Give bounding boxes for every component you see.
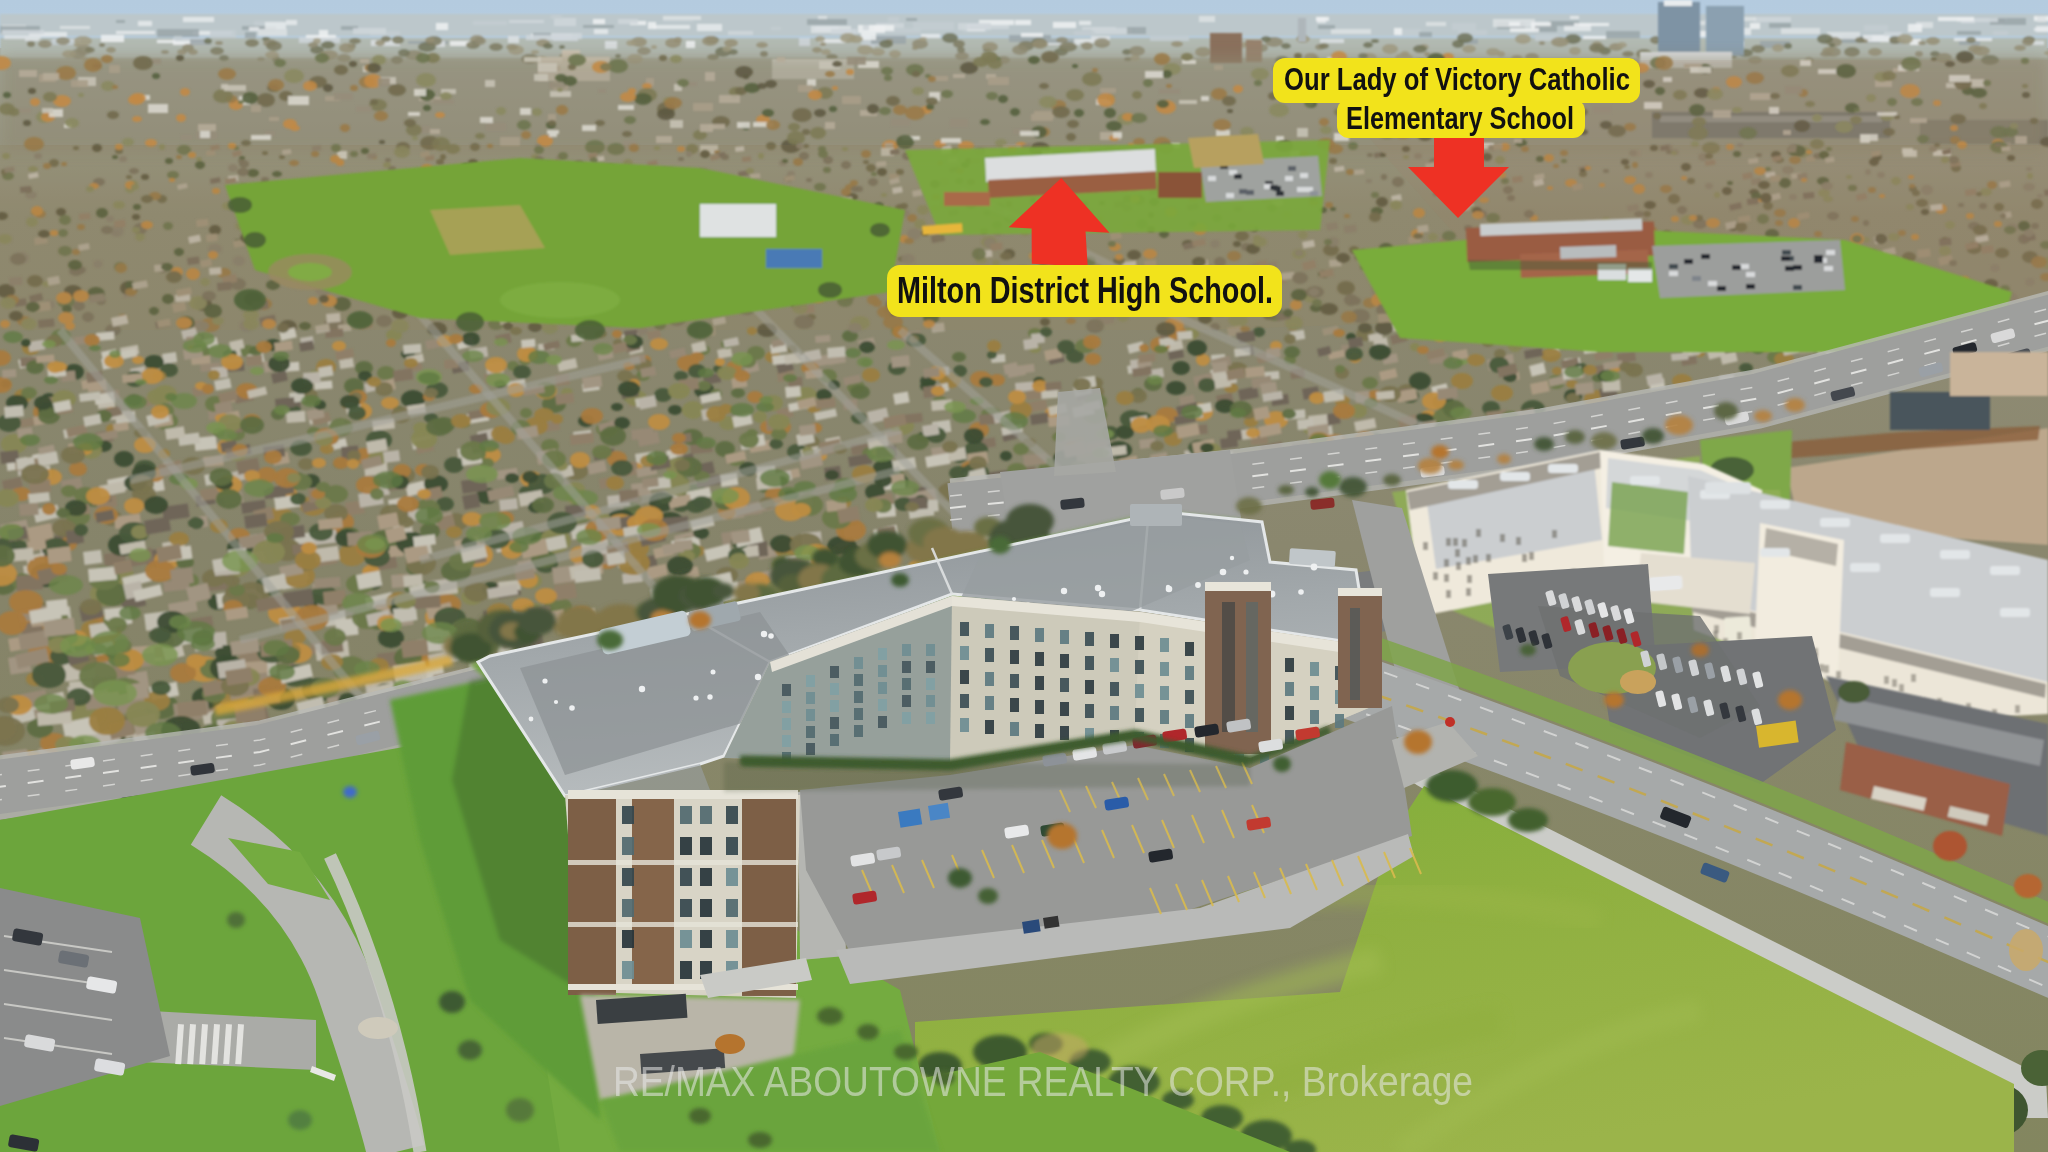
svg-text:RE/MAX ABOUTOWNE REALTY CORP.,: RE/MAX ABOUTOWNE REALTY CORP., Brokerage — [613, 1058, 1473, 1105]
svg-text:Elementary School: Elementary School — [1346, 101, 1574, 136]
svg-text:Our Lady of Victory Catholic: Our Lady of Victory Catholic — [1284, 62, 1630, 97]
svg-text:Milton District High School.: Milton District High School. — [897, 270, 1273, 311]
